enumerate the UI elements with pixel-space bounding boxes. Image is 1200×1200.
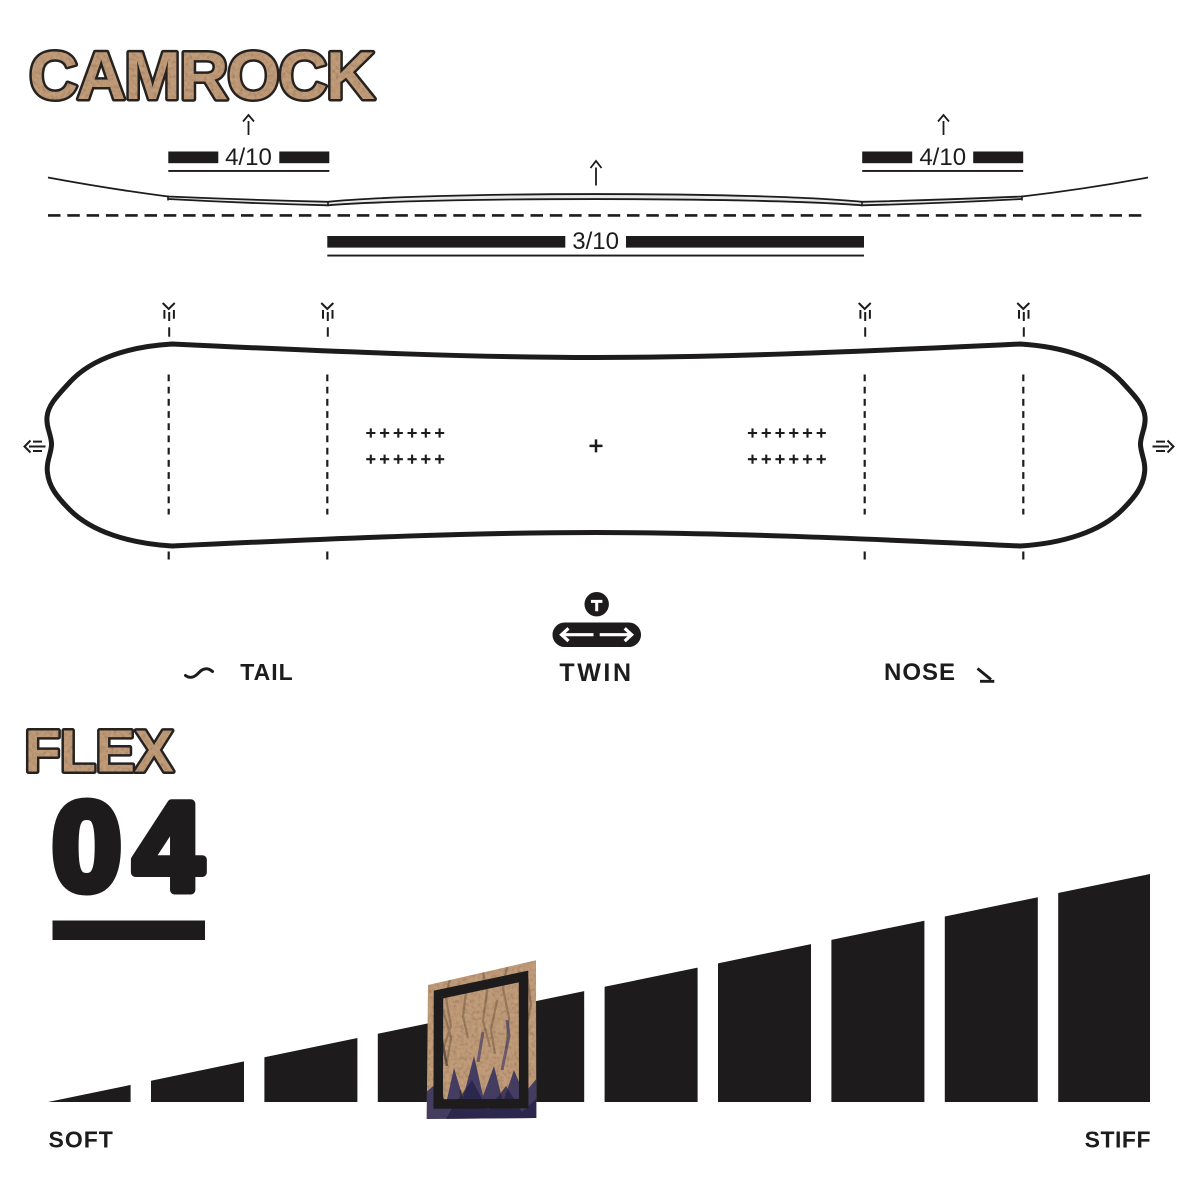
svg-text:4/10: 4/10 [225,144,272,171]
svg-text:TWIN: TWIN [559,659,633,687]
svg-text:NOSE: NOSE [884,659,956,686]
svg-text:04: 04 [52,778,215,917]
svg-text:SOFT: SOFT [49,1127,114,1153]
svg-text:TAIL: TAIL [240,659,293,685]
svg-text:STIFF: STIFF [1085,1127,1151,1153]
svg-text:FLEX: FLEX [25,719,174,785]
svg-text:3/10: 3/10 [572,228,619,255]
svg-text:CAMROCK: CAMROCK [29,38,375,114]
svg-text:4/10: 4/10 [919,144,966,171]
